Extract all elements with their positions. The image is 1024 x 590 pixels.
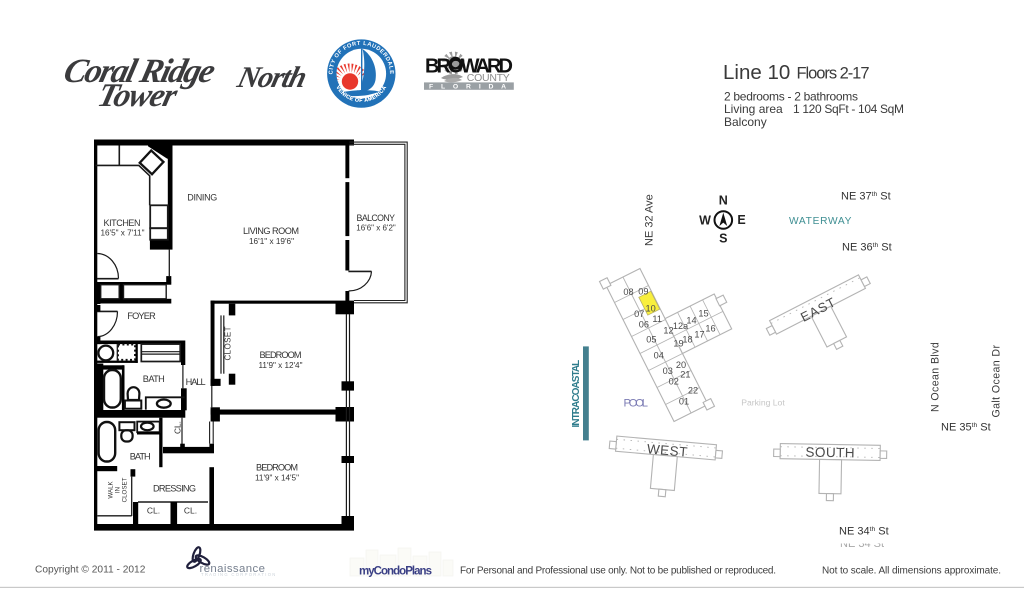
svg-text:CL.: CL. [147,505,160,515]
svg-text:FOYER: FOYER [127,311,156,321]
svg-text:CL.: CL. [184,505,197,515]
svg-text:TRADING CORPORATION: TRADING CORPORATION [201,572,277,577]
svg-text:BALCONY: BALCONY [357,213,396,223]
svg-text:CL.: CL. [173,421,183,434]
svg-text:16'5" x 7'11": 16'5" x 7'11" [101,229,145,238]
svg-text:16'1" x 19'6": 16'1" x 19'6" [249,237,294,246]
svg-text:LIVING ROOM: LIVING ROOM [243,226,299,236]
svg-text:myCondoPlans: myCondoPlans [359,566,432,578]
svg-text:BEDROOM: BEDROOM [256,463,298,473]
svg-text:16'6" x 6'2": 16'6" x 6'2" [356,223,396,232]
svg-text:18: 18 [682,335,692,345]
svg-text:20: 20 [676,360,686,370]
svg-text:17: 17 [694,330,704,340]
svg-text:WALK: WALK [108,480,115,498]
svg-text:Balcony: Balcony [724,115,767,129]
svg-text:11'9" x 14'5": 11'9" x 14'5" [255,474,299,483]
svg-text:For Personal and Professional: For Personal and Professional use only. … [460,566,776,577]
svg-text:11: 11 [652,314,662,324]
svg-text:BEDROOM: BEDROOM [260,350,302,360]
svg-text:POOL: POOL [624,398,649,410]
svg-text:06: 06 [639,320,649,330]
svg-text:North: North [233,60,310,93]
svg-text:Tower: Tower [94,77,182,113]
svg-text:COUNTY: COUNTY [467,72,511,84]
svg-text:HALL: HALL [186,377,206,387]
svg-text:CLOSET: CLOSET [224,326,233,360]
svg-text:02: 02 [669,377,679,387]
svg-text:S: S [719,232,727,246]
svg-text:NE 37th St: NE 37th St [841,191,891,203]
svg-text:DRESSING: DRESSING [153,484,196,494]
svg-text:N Ocean Blvd: N Ocean Blvd [929,342,941,412]
svg-text:01: 01 [679,397,689,407]
svg-text:DINING: DINING [187,193,217,203]
svg-text:BATH: BATH [143,374,165,384]
svg-text:Floors 2-17: Floors 2-17 [797,65,870,83]
svg-text:NE 36th St: NE 36th St [842,242,892,254]
svg-text:03: 03 [663,366,673,376]
svg-text:07: 07 [634,309,644,319]
svg-text:09: 09 [638,286,648,296]
svg-text:NE 35th St: NE 35th St [941,422,991,434]
svg-text:05: 05 [646,335,656,345]
svg-text:04: 04 [654,350,664,360]
svg-text:15: 15 [698,309,708,319]
svg-text:21: 21 [680,369,690,379]
svg-text:NE 34th St: NE 34th St [839,526,889,538]
svg-text:INTRACOASTAL: INTRACOASTAL [571,360,582,428]
svg-text:E: E [737,213,745,227]
svg-text:Line 10: Line 10 [723,61,790,84]
svg-text:N: N [719,194,728,208]
svg-text:IN: IN [115,487,122,493]
svg-text:11'9" x 12'4": 11'9" x 12'4" [259,361,303,370]
svg-text:1 120 SqFt - 104 SqM: 1 120 SqFt - 104 SqM [793,102,904,116]
svg-text:Parking Lot: Parking Lot [741,398,785,408]
svg-text:Not to scale. All dimensions: Not to scale. All dimensions approximate… [822,566,1001,577]
svg-text:KITCHEN: KITCHEN [104,218,141,228]
svg-text:16: 16 [705,324,715,334]
svg-text:Copyright © 2011 - 2012: Copyright © 2011 - 2012 [35,565,146,576]
svg-text:08: 08 [623,287,633,297]
svg-text:BATH: BATH [130,451,151,461]
svg-text:W: W [699,214,711,228]
svg-text:WATERWAY: WATERWAY [789,216,852,227]
svg-text:F L O R I D A: F L O R I D A [429,84,509,91]
svg-text:10: 10 [645,304,655,314]
svg-text:NE 32 Ave: NE 32 Ave [643,194,655,246]
svg-text:SOUTH: SOUTH [805,445,855,461]
svg-text:Galt Ocean Dr: Galt Ocean Dr [990,345,1002,418]
svg-text:22: 22 [688,386,698,396]
svg-text:CLOSET: CLOSET [122,477,129,502]
svg-text:14: 14 [686,316,696,326]
